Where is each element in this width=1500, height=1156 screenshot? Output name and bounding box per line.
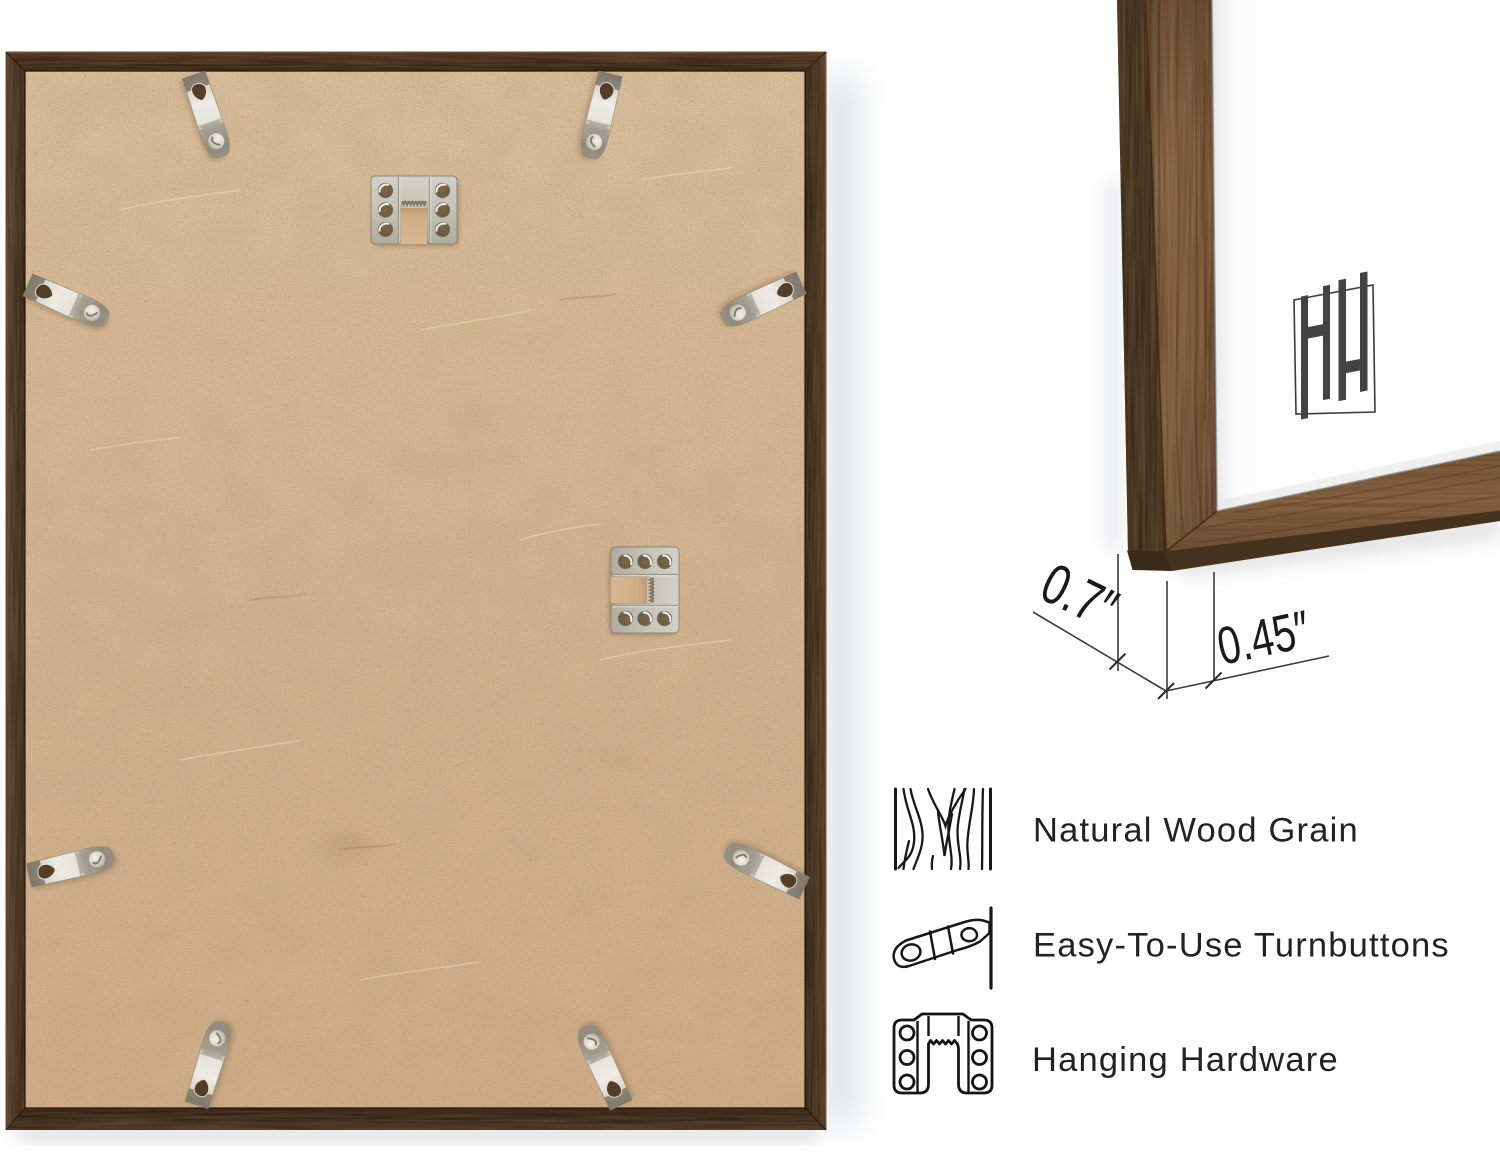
svg-text:Natural Wood Grain: Natural Wood Grain (1033, 812, 1359, 850)
svg-text:Easy-To-Use Turnbuttons: Easy-To-Use Turnbuttons (1033, 927, 1450, 965)
svg-text:Hanging Hardware: Hanging Hardware (1032, 1041, 1339, 1079)
